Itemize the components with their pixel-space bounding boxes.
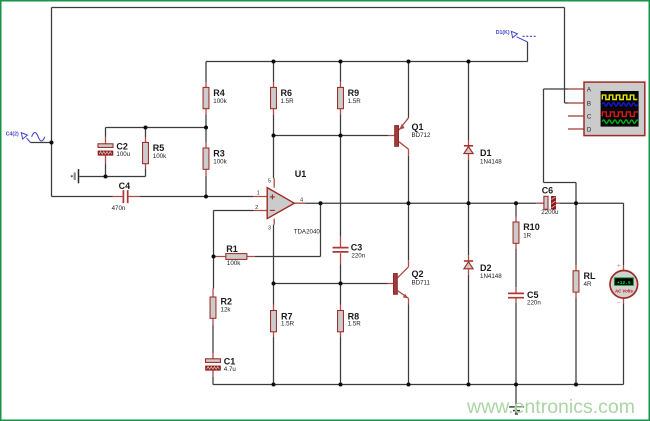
svg-text:470n: 470n: [112, 205, 126, 212]
svg-text:1: 1: [257, 191, 260, 197]
svg-text:R5: R5: [153, 143, 165, 153]
svg-text:220n: 220n: [351, 253, 365, 260]
svg-text:1N4148: 1N4148: [480, 159, 502, 166]
svg-text:12k: 12k: [221, 307, 232, 314]
svg-text:RL: RL: [584, 271, 596, 281]
svg-text:100k: 100k: [213, 98, 227, 105]
svg-text:D1: D1: [480, 148, 492, 158]
svg-text:U1: U1: [295, 169, 307, 179]
svg-text:R9: R9: [348, 88, 360, 98]
svg-text:100k: 100k: [213, 159, 227, 166]
svg-text:4: 4: [300, 197, 303, 203]
svg-text:R2: R2: [221, 297, 233, 307]
svg-text:1.5R: 1.5R: [348, 321, 362, 328]
svg-text:B: B: [587, 100, 591, 107]
svg-text:C4(2): C4(2): [6, 131, 19, 137]
svg-text:BD711: BD711: [412, 279, 431, 286]
svg-text:Q1: Q1: [412, 122, 424, 132]
svg-text:BD712: BD712: [412, 132, 431, 139]
svg-text:AC Volts: AC Volts: [614, 288, 634, 293]
svg-text:D: D: [587, 126, 592, 133]
svg-text:1.5R: 1.5R: [281, 98, 295, 105]
svg-text:220n: 220n: [527, 300, 541, 307]
svg-text:−: −: [617, 300, 621, 307]
svg-text:www.entronics.com: www.entronics.com: [466, 396, 635, 418]
svg-text:R10: R10: [523, 222, 540, 232]
svg-text:2: 2: [255, 205, 258, 211]
svg-text:R3: R3: [213, 149, 225, 159]
svg-text:4.7u: 4.7u: [224, 366, 237, 373]
svg-text:100k: 100k: [153, 153, 167, 160]
svg-text:Q2: Q2: [412, 269, 424, 279]
svg-text:TDA2040: TDA2040: [294, 228, 321, 235]
svg-text:1.5R: 1.5R: [348, 98, 362, 105]
svg-text:C1: C1: [224, 356, 236, 366]
svg-text:R6: R6: [281, 88, 293, 98]
svg-text:2200u: 2200u: [541, 209, 559, 216]
svg-text:4R: 4R: [584, 281, 592, 288]
svg-text:+: +: [617, 263, 621, 270]
svg-text:1.5R: 1.5R: [281, 321, 295, 328]
svg-text:100u: 100u: [116, 151, 130, 158]
svg-text:1N4148: 1N4148: [480, 273, 502, 280]
svg-text:100k: 100k: [227, 260, 241, 267]
svg-text:C3: C3: [351, 242, 363, 252]
svg-text:5: 5: [268, 179, 271, 185]
svg-text:C4: C4: [119, 181, 131, 191]
svg-text:D1(K): D1(K): [496, 30, 510, 36]
svg-text:R1: R1: [226, 244, 238, 254]
svg-text:D2: D2: [480, 263, 492, 273]
svg-text:+12.5: +12.5: [617, 280, 631, 286]
svg-text:3: 3: [268, 226, 271, 232]
svg-text:R4: R4: [213, 88, 225, 98]
svg-text:C6: C6: [542, 186, 554, 196]
svg-text:1R: 1R: [523, 232, 531, 239]
svg-text:C: C: [587, 113, 592, 120]
